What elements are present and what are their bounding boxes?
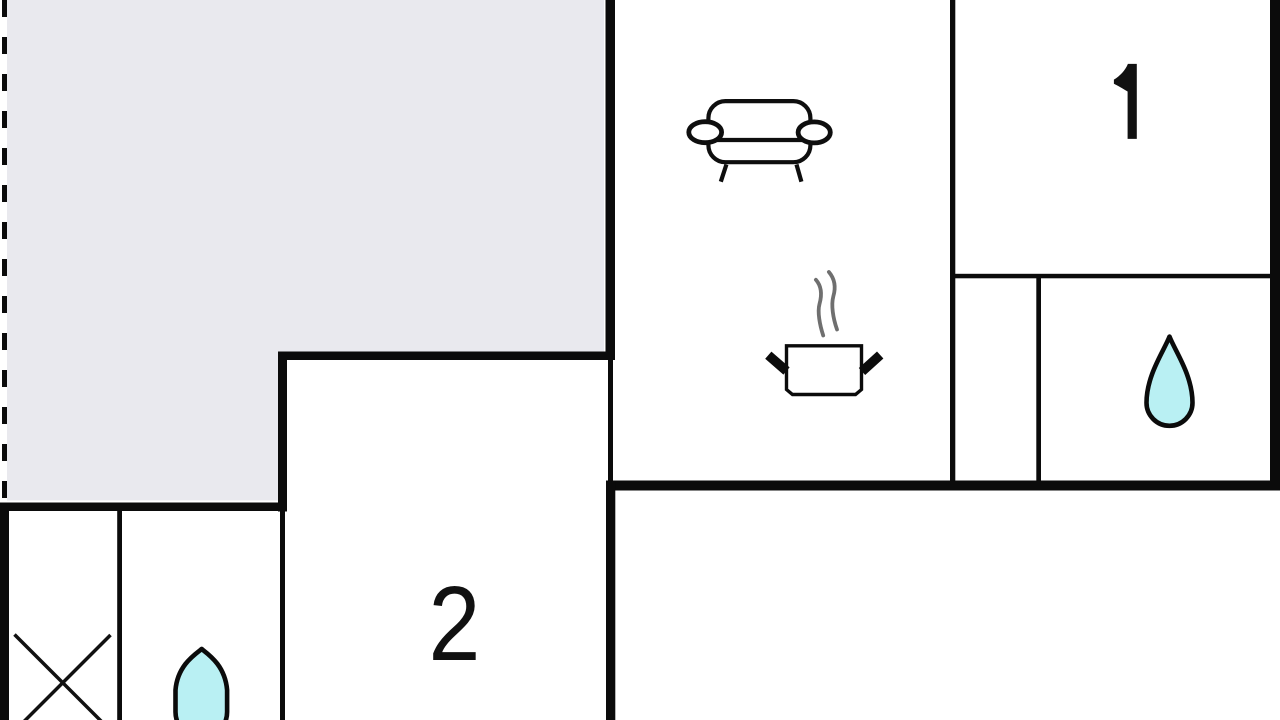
svg-text:2: 2 [429,566,481,684]
